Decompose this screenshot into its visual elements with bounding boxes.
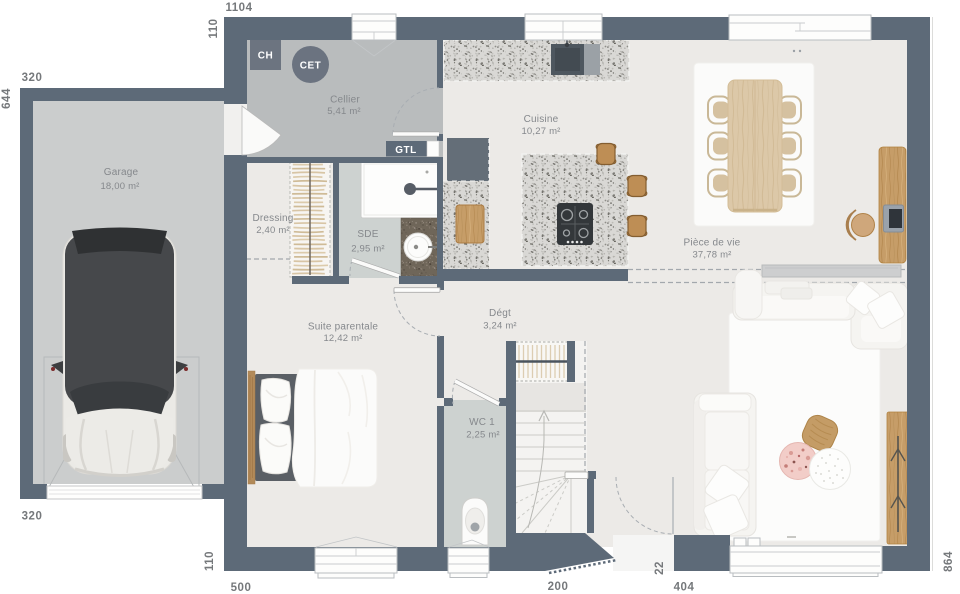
svg-text:Garage: Garage [104,167,139,178]
svg-text:12,42 m²: 12,42 m² [323,333,362,344]
svg-text:CET: CET [300,61,322,72]
svg-text:320: 320 [22,72,43,84]
svg-text:110: 110 [208,18,220,38]
svg-text:18,00 m²: 18,00 m² [100,181,139,192]
svg-text:SDE: SDE [357,229,378,240]
svg-text:110: 110 [204,551,216,571]
svg-text:2,25 m²: 2,25 m² [466,430,500,441]
svg-text:Dégt: Dégt [489,308,511,319]
svg-text:22: 22 [654,561,666,575]
svg-text:CH: CH [258,51,273,62]
svg-text:Cellier: Cellier [330,95,360,106]
svg-text:5,41 m²: 5,41 m² [327,106,361,117]
svg-text:WC 1: WC 1 [469,417,495,428]
svg-text:37,78 m²: 37,78 m² [692,250,731,261]
svg-text:404: 404 [674,582,695,594]
svg-text:644: 644 [1,88,13,109]
svg-text:320: 320 [22,511,43,523]
svg-text:Suite parentale: Suite parentale [308,322,379,333]
svg-text:3,24 m²: 3,24 m² [483,321,517,332]
svg-text:Dressing: Dressing [252,213,293,224]
svg-text:10,27 m²: 10,27 m² [521,126,560,137]
svg-text:500: 500 [231,582,252,594]
svg-text:200: 200 [548,581,569,593]
svg-text:GTL: GTL [395,145,417,156]
svg-text:2,95 m²: 2,95 m² [351,244,385,255]
svg-text:2,40 m²: 2,40 m² [256,225,290,236]
svg-text:864: 864 [943,551,955,572]
svg-text:Cuisine: Cuisine [524,114,559,125]
svg-text:1104: 1104 [226,2,253,14]
svg-text:Pièce de vie: Pièce de vie [684,238,741,249]
